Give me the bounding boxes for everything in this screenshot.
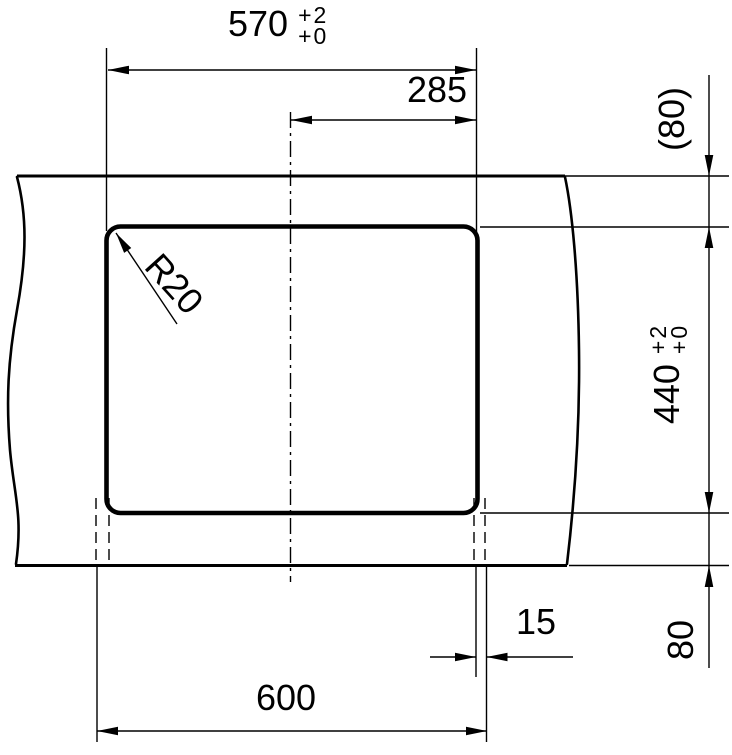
dim-label-center-to-edge: 285 bbox=[407, 75, 467, 105]
extension-lines bbox=[97, 48, 729, 742]
dim-value-600: 600 bbox=[256, 683, 316, 713]
tolerance-stack-570: +2 +0 bbox=[298, 5, 328, 47]
tolerance-stack-440: +2 +0 bbox=[648, 324, 690, 354]
drawing-canvas bbox=[0, 0, 732, 755]
dim-value-440: 440 bbox=[652, 364, 682, 424]
dim-value-570: 570 bbox=[228, 9, 288, 39]
dim-value-80-top: (80) bbox=[657, 87, 687, 151]
dim-label-top-edge-distance: (80) bbox=[657, 87, 687, 151]
dim-value-285: 285 bbox=[407, 75, 467, 105]
panel-outline bbox=[8, 176, 579, 566]
dim-label-cutout-width: 570 +2 +0 bbox=[228, 9, 328, 47]
right-break-line bbox=[565, 177, 579, 564]
dim-label-bottom-edge-distance: 80 bbox=[666, 620, 696, 660]
left-break-line bbox=[8, 177, 24, 564]
technical-drawing-page: 570 +2 +0 285 R20 (80) 440 +2 +0 80 15 6… bbox=[0, 0, 732, 755]
dim-value-15: 15 bbox=[516, 607, 556, 637]
dim-value-80-bottom: 80 bbox=[666, 620, 696, 660]
dimension-lines bbox=[97, 70, 709, 731]
dim-label-side-offset: 15 bbox=[516, 607, 556, 637]
dim-label-cutout-height: 440 +2 +0 bbox=[652, 324, 690, 424]
tolerance-lower: +0 bbox=[298, 26, 328, 47]
dim-label-overall-width: 600 bbox=[256, 683, 316, 713]
tolerance-lower: +0 bbox=[669, 324, 690, 354]
